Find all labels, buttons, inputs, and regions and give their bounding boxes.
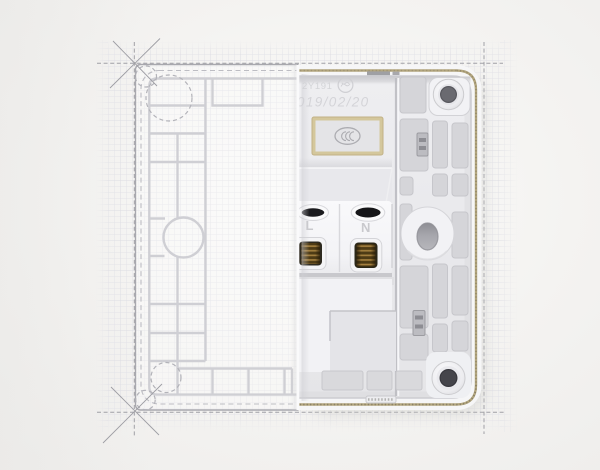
svg-text:2019/02/20: 2019/02/20 bbox=[287, 95, 370, 110]
svg-text:N: N bbox=[361, 220, 370, 235]
